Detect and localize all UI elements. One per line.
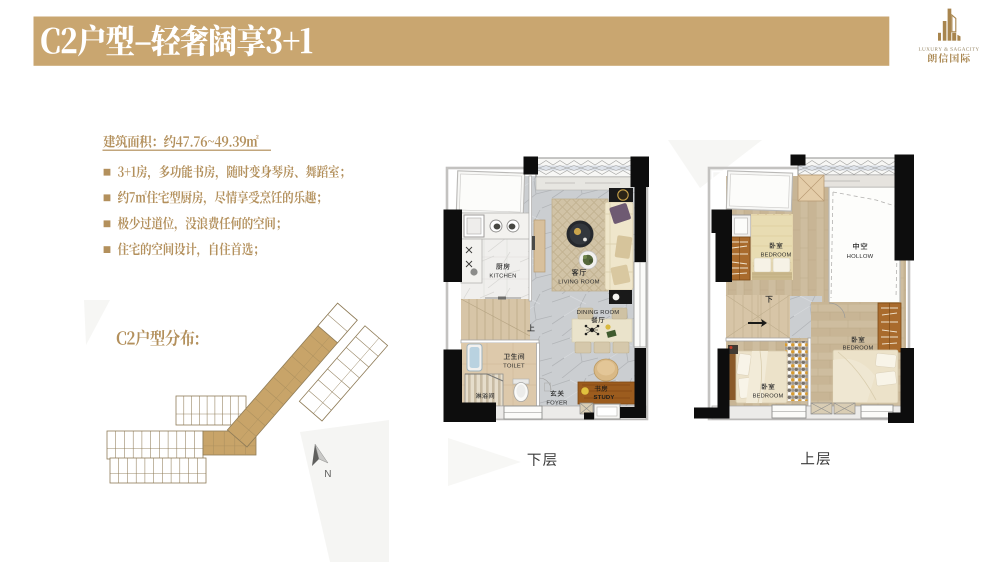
svg-text:KITCHEN: KITCHEN — [489, 274, 516, 280]
svg-text:DINING ROOM: DINING ROOM — [577, 310, 620, 316]
svg-text:HOLLOW: HOLLOW — [847, 254, 874, 260]
svg-text:BEDROOM: BEDROOM — [761, 253, 792, 259]
svg-text:TOILET: TOILET — [503, 364, 525, 370]
svg-text:N: N — [324, 469, 332, 480]
svg-text:BEDROOM: BEDROOM — [843, 346, 874, 352]
svg-text:LIVING ROOM: LIVING ROOM — [558, 280, 599, 286]
svg-text:STUDY: STUDY — [594, 395, 615, 401]
svg-text:BEDROOM: BEDROOM — [753, 394, 784, 400]
svg-text:FOYER: FOYER — [546, 401, 567, 407]
